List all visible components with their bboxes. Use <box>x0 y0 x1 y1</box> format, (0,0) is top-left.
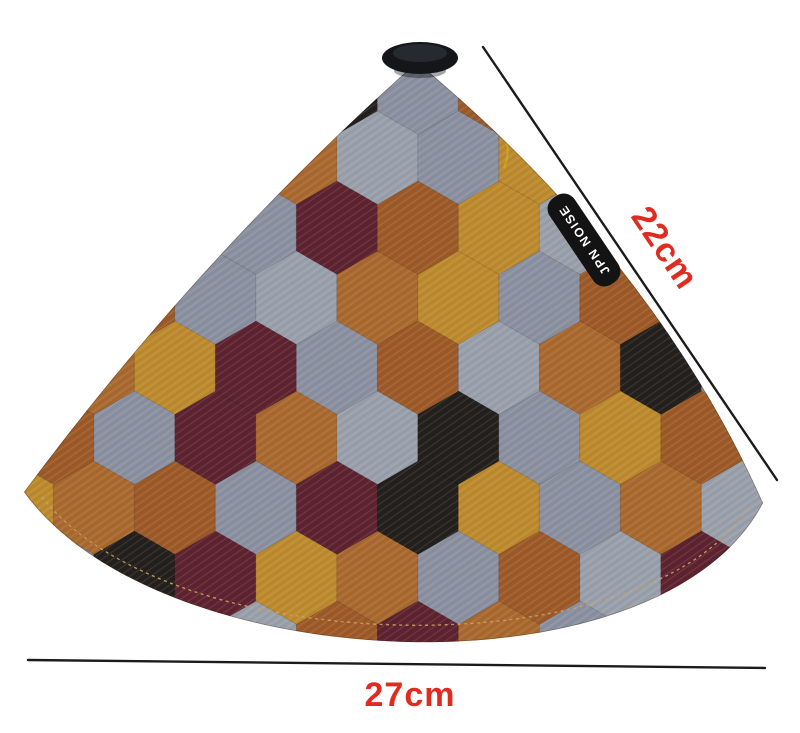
fabric-cone <box>0 0 800 733</box>
bottom-dimension-label: 27cm <box>365 676 456 714</box>
snap-button <box>382 42 458 78</box>
fabric-texture <box>0 0 800 733</box>
diagonal-dimension-label: 22cm <box>623 200 705 297</box>
product-image: JPN NOISE 22cm 27cm <box>0 0 800 733</box>
bottom-dimension-line <box>28 660 765 668</box>
snap-highlight <box>393 44 447 62</box>
product-photo: JPN NOISE 22cm 27cm <box>0 0 800 733</box>
